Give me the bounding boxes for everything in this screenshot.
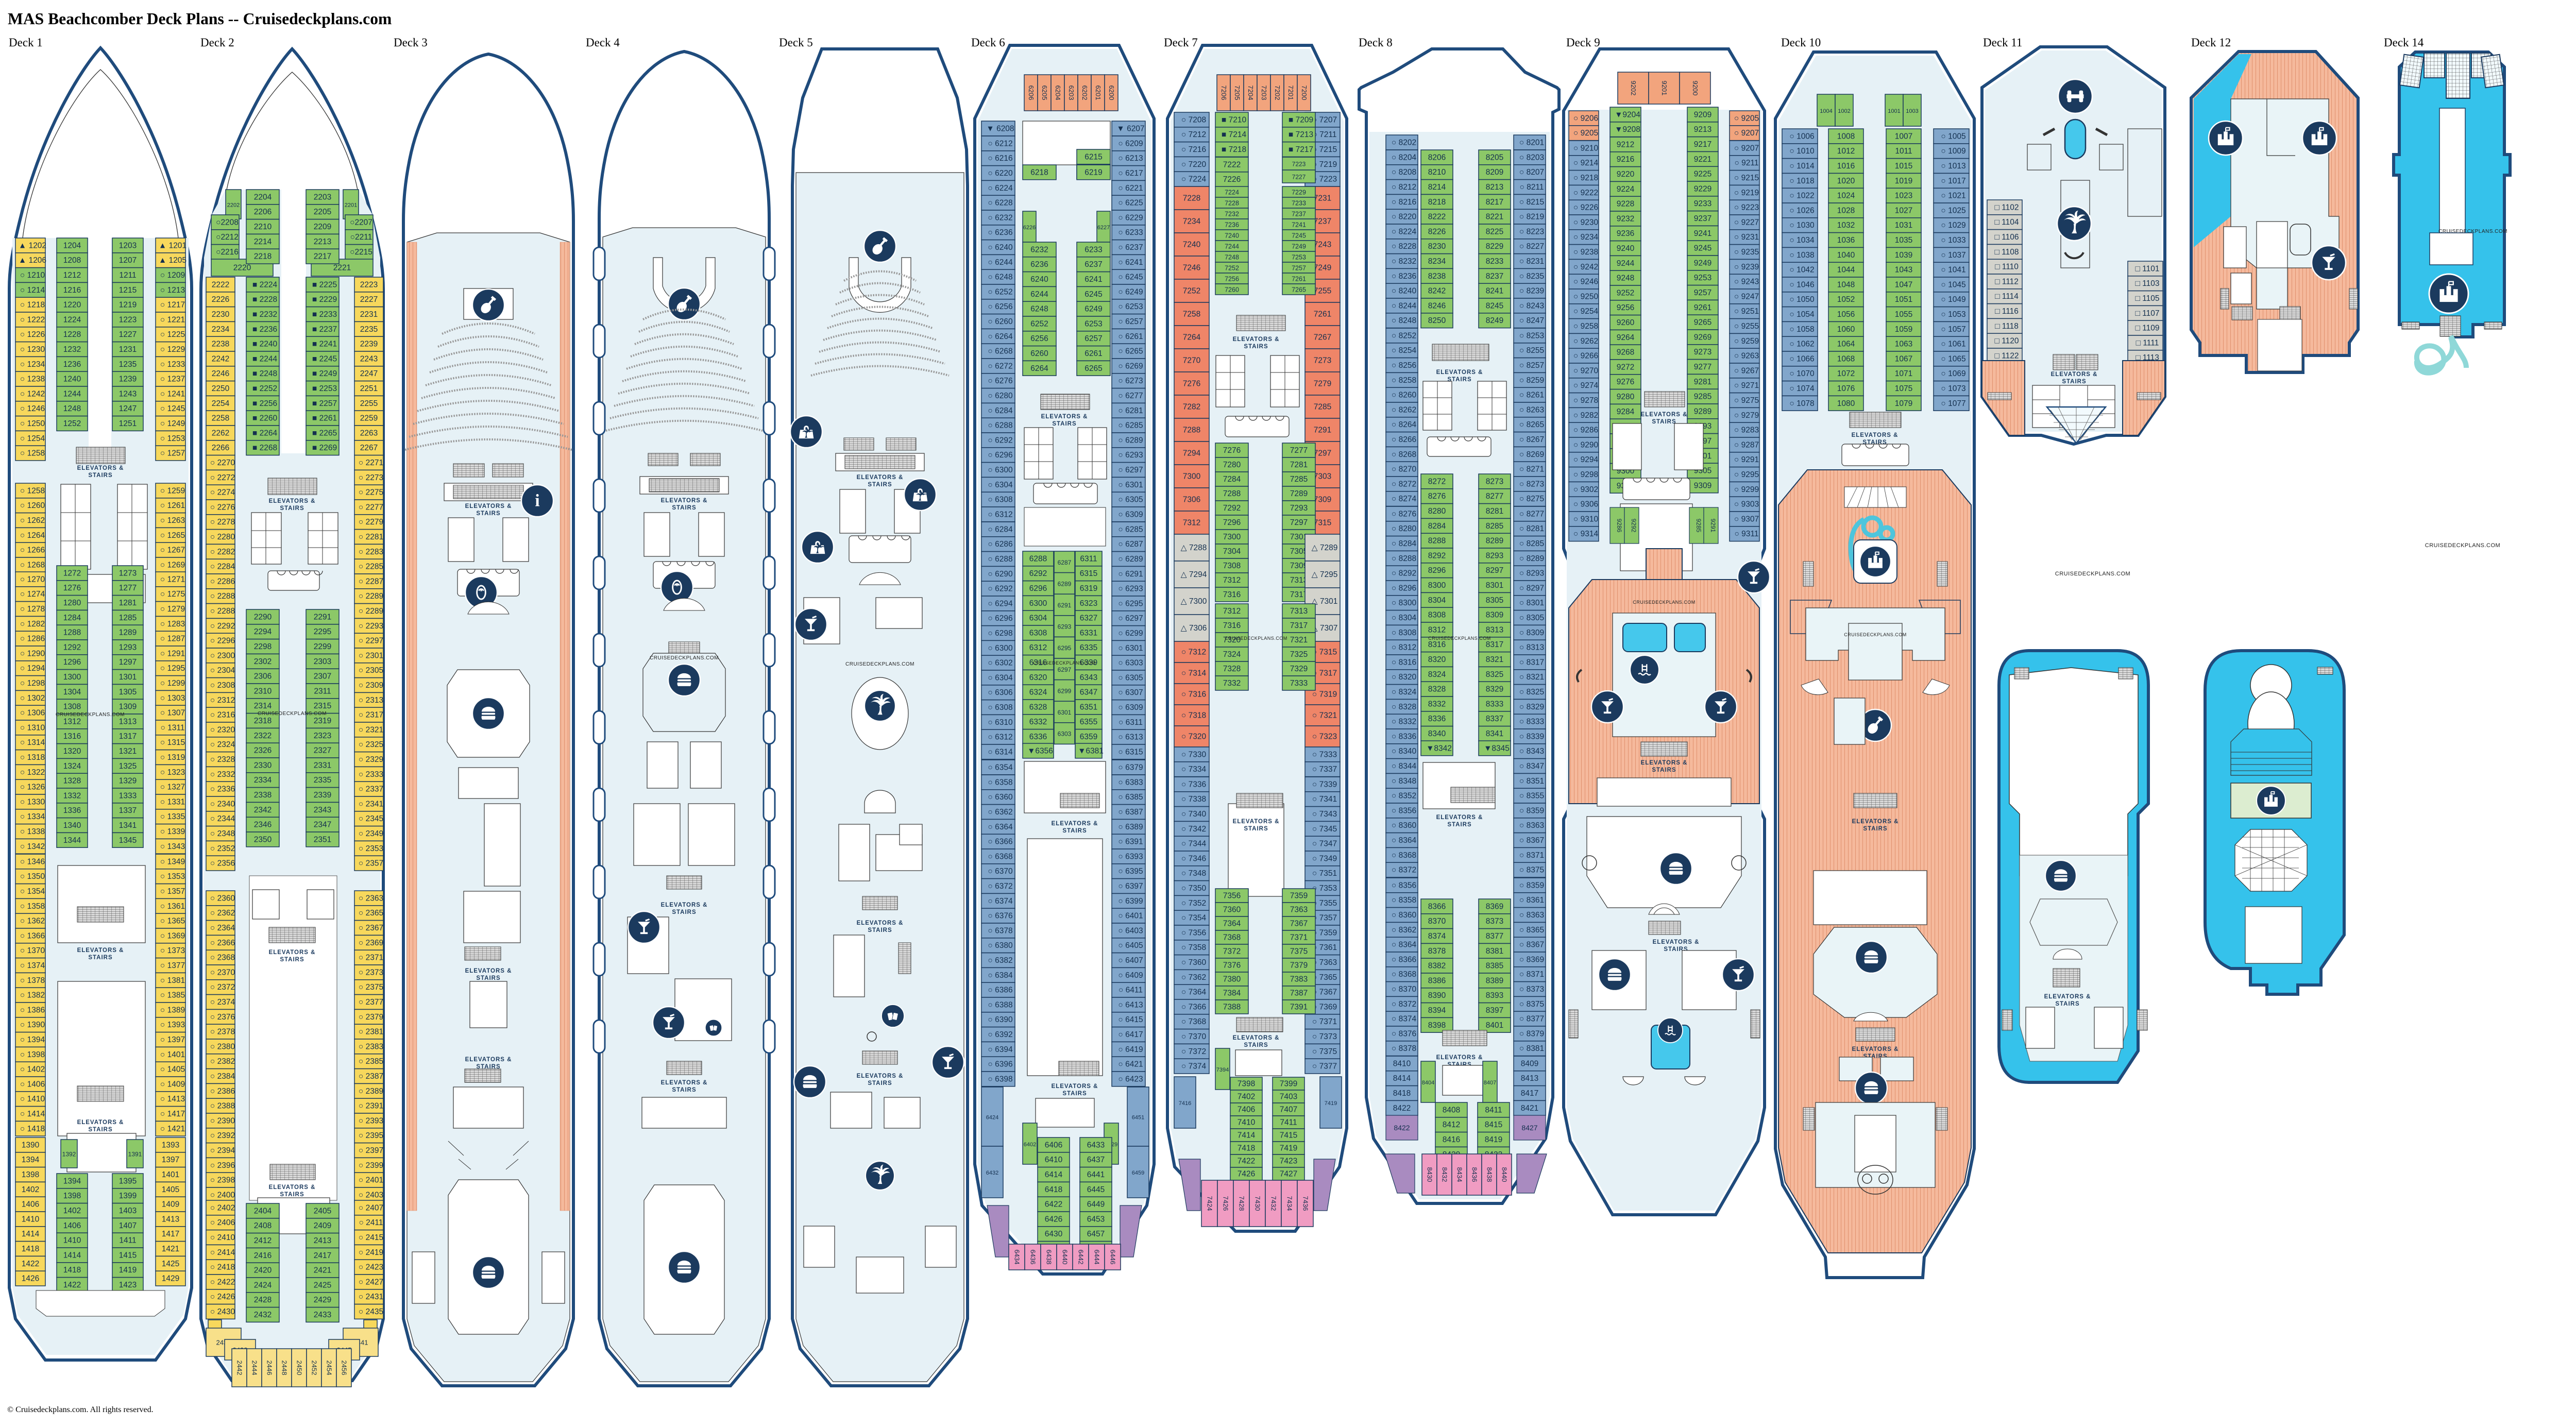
svg-text:○ 7348: ○ 7348	[1181, 869, 1206, 878]
svg-text:8440: 8440	[1501, 1167, 1509, 1182]
svg-text:○ 6413: ○ 6413	[1118, 1000, 1143, 1009]
svg-text:1063: 1063	[1895, 340, 1912, 349]
svg-text:○ 2364: ○ 2364	[210, 924, 235, 932]
svg-text:6265: 6265	[1084, 364, 1102, 373]
svg-text:□ 1120: □ 1120	[1995, 337, 2019, 346]
svg-text:■ 7217: ■ 7217	[1289, 145, 1313, 154]
svg-text:7260: 7260	[1225, 286, 1239, 294]
svg-text:ELEVATORS &: ELEVATORS &	[1233, 336, 1280, 343]
svg-text:○ 6415: ○ 6415	[1118, 1015, 1143, 1024]
svg-text:9225: 9225	[1694, 170, 1711, 179]
svg-text:8418: 8418	[1393, 1089, 1411, 1098]
svg-text:ELEVATORS &: ELEVATORS &	[465, 1057, 512, 1063]
svg-text:○ 8260: ○ 8260	[1392, 391, 1417, 400]
svg-text:○ 2272: ○ 2272	[210, 473, 235, 482]
svg-text:7227: 7227	[1292, 174, 1306, 181]
svg-text:1231: 1231	[119, 345, 137, 354]
svg-text:1252: 1252	[63, 419, 81, 428]
svg-text:○ 6229: ○ 6229	[1118, 213, 1143, 222]
svg-text:Deck 14: Deck 14	[2384, 36, 2424, 49]
svg-text:1035: 1035	[1895, 236, 1912, 245]
svg-text:△ 7294: △ 7294	[1181, 570, 1207, 579]
svg-text:○ 8356: ○ 8356	[1392, 806, 1416, 815]
svg-text:6438: 6438	[1045, 1250, 1053, 1265]
svg-text:▼8342: ▼8342	[1426, 744, 1452, 753]
svg-text:1332: 1332	[63, 791, 81, 800]
svg-text:1020: 1020	[1837, 177, 1855, 185]
svg-text:2408: 2408	[254, 1221, 272, 1230]
svg-text:6202: 6202	[1081, 86, 1089, 100]
svg-text:○ 2270: ○ 2270	[210, 458, 235, 467]
svg-text:6331: 6331	[1080, 628, 1097, 637]
svg-text:○ 9218: ○ 9218	[1573, 174, 1598, 182]
svg-text:7289: 7289	[1290, 489, 1308, 498]
svg-text:6299: 6299	[1058, 687, 1072, 694]
svg-text:7312: 7312	[1223, 607, 1241, 616]
svg-text:7308: 7308	[1223, 562, 1241, 570]
svg-text:1296: 1296	[63, 658, 81, 667]
svg-text:○ 2390: ○ 2390	[210, 1116, 235, 1125]
svg-text:6434: 6434	[1013, 1250, 1021, 1265]
svg-text:○ 8276: ○ 8276	[1392, 509, 1416, 518]
svg-text:8226: 8226	[1428, 227, 1446, 236]
svg-text:Deck 3: Deck 3	[394, 36, 428, 49]
svg-text:ELEVATORS &: ELEVATORS &	[1641, 760, 1688, 766]
svg-text:○ 8207: ○ 8207	[1519, 168, 1544, 177]
svg-text:7288: 7288	[1183, 426, 1200, 435]
svg-text:○ 2378: ○ 2378	[210, 1028, 235, 1037]
svg-text:6332: 6332	[1029, 718, 1047, 726]
svg-text:STAIRS: STAIRS	[868, 482, 892, 488]
svg-text:○ 6297: ○ 6297	[1118, 466, 1143, 474]
svg-text:○ 8293: ○ 8293	[1519, 569, 1544, 578]
svg-text:9244: 9244	[1617, 259, 1635, 268]
svg-text:○ 7339: ○ 7339	[1312, 780, 1337, 789]
svg-text:○ 1330: ○ 1330	[20, 797, 45, 806]
svg-text:○ 9247: ○ 9247	[1734, 292, 1759, 301]
svg-text:7234: 7234	[1183, 217, 1201, 226]
svg-text:8221: 8221	[1486, 213, 1503, 222]
svg-text:2331: 2331	[314, 761, 331, 770]
svg-text:○ 1382: ○ 1382	[20, 991, 45, 1000]
svg-text:7419: 7419	[1325, 1100, 1337, 1107]
svg-text:○ 9235: ○ 9235	[1734, 248, 1759, 257]
svg-text:○ 1385: ○ 1385	[160, 991, 185, 1000]
svg-text:○ 8360: ○ 8360	[1392, 911, 1417, 920]
svg-text:○ 1021: ○ 1021	[1941, 192, 1965, 200]
svg-text:1403: 1403	[119, 1207, 137, 1215]
svg-text:○ 2348: ○ 2348	[210, 829, 235, 838]
svg-text:2412: 2412	[254, 1236, 272, 1245]
svg-text:1410: 1410	[63, 1236, 81, 1245]
svg-text:○ 1070: ○ 1070	[1789, 369, 1815, 378]
svg-text:6232: 6232	[1030, 245, 1048, 254]
svg-text:8214: 8214	[1428, 183, 1446, 192]
svg-text:□ 1111: □ 1111	[2136, 338, 2159, 347]
svg-text:1008: 1008	[1837, 132, 1855, 141]
svg-text:○ 2344: ○ 2344	[210, 814, 235, 823]
svg-text:○ 6296: ○ 6296	[988, 614, 1012, 623]
svg-text:1423: 1423	[119, 1281, 137, 1289]
svg-text:○ 6312: ○ 6312	[988, 510, 1012, 519]
svg-text:■ 2244: ■ 2244	[252, 354, 278, 363]
svg-text:○ 1264: ○ 1264	[20, 531, 45, 540]
svg-text:○ 1229: ○ 1229	[160, 345, 185, 354]
svg-text:STAIRS: STAIRS	[280, 957, 304, 963]
svg-text:○ 2363: ○ 2363	[359, 894, 383, 903]
svg-text:○ 2368: ○ 2368	[210, 954, 235, 962]
svg-text:○ 2406: ○ 2406	[210, 1218, 235, 1227]
svg-text:8292: 8292	[1428, 551, 1446, 560]
svg-text:ELEVATORS &: ELEVATORS &	[465, 968, 512, 974]
svg-text:7285: 7285	[1290, 475, 1308, 484]
svg-text:○ 2393: ○ 2393	[359, 1116, 383, 1125]
svg-text:7363: 7363	[1290, 906, 1308, 914]
svg-text:6449: 6449	[1087, 1200, 1105, 1209]
svg-text:1071: 1071	[1895, 369, 1912, 378]
svg-text:○ 2345: ○ 2345	[359, 814, 383, 823]
svg-text:○ 1353: ○ 1353	[160, 872, 185, 881]
svg-text:1028: 1028	[1837, 206, 1855, 215]
svg-text:8421: 8421	[1521, 1104, 1538, 1113]
svg-text:○ 1250: ○ 1250	[20, 419, 45, 428]
svg-text:2428: 2428	[254, 1296, 272, 1304]
svg-text:6204: 6204	[1054, 86, 1062, 100]
svg-text:○ 6264: ○ 6264	[988, 332, 1013, 341]
svg-text:1223: 1223	[119, 315, 137, 324]
svg-text:6233: 6233	[1084, 245, 1102, 254]
svg-text:○ 9258: ○ 9258	[1573, 322, 1598, 331]
svg-text:1344: 1344	[63, 836, 81, 845]
svg-text:○ 6376: ○ 6376	[988, 912, 1012, 921]
svg-text:6343: 6343	[1080, 673, 1097, 682]
svg-text:9200: 9200	[1691, 81, 1699, 96]
svg-text:○ 2362: ○ 2362	[210, 909, 235, 918]
svg-text:○ 9290: ○ 9290	[1573, 440, 1599, 449]
svg-text:7428: 7428	[1238, 1196, 1246, 1211]
svg-text:○ 1342: ○ 1342	[20, 842, 45, 851]
svg-text:8238: 8238	[1428, 272, 1446, 281]
svg-text:○ 8366: ○ 8366	[1392, 955, 1416, 964]
svg-text:▲ 1201: ▲ 1201	[159, 241, 187, 250]
svg-text:○ 1350: ○ 1350	[20, 872, 45, 881]
svg-text:■ 2268: ■ 2268	[252, 444, 277, 452]
svg-text:□ 1118: □ 1118	[1995, 322, 2019, 331]
svg-text:○ 8347: ○ 8347	[1519, 762, 1544, 771]
svg-text:6301: 6301	[1058, 709, 1072, 716]
svg-text:8245: 8245	[1486, 301, 1503, 310]
svg-text:○ 8379: ○ 8379	[1519, 1029, 1544, 1038]
svg-text:1313: 1313	[119, 717, 137, 726]
svg-text:6200: 6200	[1108, 86, 1115, 100]
svg-text:8237: 8237	[1486, 272, 1503, 281]
svg-text:9212: 9212	[1617, 140, 1634, 149]
svg-text:○ 8219: ○ 8219	[1519, 213, 1544, 222]
svg-text:○ 2308: ○ 2308	[210, 681, 235, 690]
svg-text:○ 8329: ○ 8329	[1519, 703, 1544, 711]
svg-text:7292: 7292	[1223, 504, 1241, 513]
svg-text:8386: 8386	[1428, 976, 1446, 985]
svg-text:○ 1269: ○ 1269	[160, 560, 185, 569]
svg-text:1415: 1415	[119, 1251, 137, 1260]
svg-text:6296: 6296	[1029, 584, 1047, 593]
svg-text:8285: 8285	[1486, 522, 1503, 531]
svg-text:○ 9246: ○ 9246	[1573, 278, 1598, 286]
svg-text:■ 2233: ■ 2233	[312, 310, 337, 319]
svg-text:○ 8372: ○ 8372	[1392, 1000, 1416, 1009]
svg-text:1203: 1203	[119, 241, 137, 250]
svg-text:○ 9283: ○ 9283	[1734, 426, 1759, 435]
svg-text:□ 1103: □ 1103	[2136, 279, 2160, 288]
svg-text:○ 6307: ○ 6307	[1118, 688, 1143, 697]
svg-text:7280: 7280	[1223, 461, 1241, 469]
svg-text:○ 2380: ○ 2380	[210, 1042, 235, 1051]
svg-text:6248: 6248	[1030, 305, 1048, 314]
svg-text:○ 1274: ○ 1274	[20, 590, 45, 599]
svg-text:6288: 6288	[1029, 554, 1047, 563]
svg-text:2258: 2258	[212, 414, 229, 423]
svg-text:2218: 2218	[254, 252, 272, 261]
svg-text:2299: 2299	[314, 642, 331, 651]
svg-text:○ 6241: ○ 6241	[1118, 258, 1143, 267]
svg-text:7415: 7415	[1280, 1131, 1297, 1140]
svg-text:7411: 7411	[1280, 1118, 1297, 1127]
svg-text:○ 1238: ○ 1238	[20, 375, 45, 384]
svg-text:ELEVATORS &: ELEVATORS &	[1052, 1083, 1098, 1090]
svg-text:7228: 7228	[1183, 194, 1200, 203]
svg-text:2350: 2350	[254, 835, 272, 844]
svg-text:○ 9210: ○ 9210	[1573, 144, 1599, 152]
svg-text:○ 7223: ○ 7223	[1312, 175, 1337, 184]
svg-text:○ 6372: ○ 6372	[988, 882, 1012, 891]
svg-text:○ 6216: ○ 6216	[988, 154, 1012, 163]
svg-text:8427: 8427	[1521, 1124, 1537, 1132]
svg-text:○ 2321: ○ 2321	[359, 725, 383, 734]
svg-text:8389: 8389	[1486, 976, 1503, 985]
svg-text:○ 6364: ○ 6364	[988, 823, 1013, 831]
svg-text:○ 6209: ○ 6209	[1118, 139, 1143, 148]
svg-text:7332: 7332	[1223, 679, 1241, 688]
svg-text:7206: 7206	[1220, 86, 1228, 100]
svg-text:8407: 8407	[1484, 1080, 1496, 1086]
svg-text:○ 8305: ○ 8305	[1519, 614, 1544, 622]
svg-text:2250: 2250	[212, 384, 230, 393]
svg-text:8393: 8393	[1486, 991, 1503, 1000]
svg-text:▲ 1206: ▲ 1206	[19, 256, 46, 265]
svg-text:1007: 1007	[1895, 132, 1912, 141]
svg-text:○ 6244: ○ 6244	[988, 258, 1013, 267]
svg-text:○ 7317: ○ 7317	[1312, 669, 1337, 678]
svg-text:○ 2277: ○ 2277	[359, 503, 383, 512]
svg-text:○ 9291: ○ 9291	[1734, 455, 1759, 464]
svg-text:7261: 7261	[1292, 276, 1306, 283]
svg-text:6433: 6433	[1087, 1141, 1105, 1149]
svg-text:○ 7220: ○ 7220	[1181, 160, 1207, 169]
svg-text:○ 8281: ○ 8281	[1519, 524, 1544, 533]
svg-text:1076: 1076	[1837, 384, 1855, 393]
svg-text:○ 2283: ○ 2283	[359, 548, 383, 556]
svg-text:ELEVATORS &: ELEVATORS &	[1641, 412, 1688, 418]
svg-text:1405: 1405	[162, 1185, 179, 1194]
svg-text:○ 2379: ○ 2379	[359, 1013, 383, 1022]
svg-text:○ 6309: ○ 6309	[1118, 510, 1143, 519]
svg-text:○ 2349: ○ 2349	[359, 829, 383, 838]
svg-text:1075: 1075	[1895, 384, 1912, 393]
svg-text:○ 8367: ○ 8367	[1519, 941, 1544, 949]
svg-text:2263: 2263	[360, 429, 378, 437]
svg-text:2322: 2322	[254, 732, 272, 740]
svg-text:○ 8263: ○ 8263	[1519, 405, 1544, 414]
svg-text:9285: 9285	[1695, 519, 1702, 533]
svg-text:Deck 2: Deck 2	[200, 36, 234, 49]
svg-text:2319: 2319	[314, 717, 331, 725]
svg-text:○ 6290: ○ 6290	[988, 570, 1013, 579]
svg-text:○ 1006: ○ 1006	[1789, 132, 1814, 141]
svg-text:6249: 6249	[1084, 305, 1102, 314]
svg-text:○ 6272: ○ 6272	[988, 362, 1012, 370]
svg-text:○ 2385: ○ 2385	[359, 1057, 383, 1066]
svg-text:○ 8376: ○ 8376	[1392, 1029, 1416, 1038]
svg-text:○ 2396: ○ 2396	[210, 1161, 235, 1170]
svg-text:ELEVATORS &: ELEVATORS &	[77, 1119, 124, 1126]
svg-text:○ 6407: ○ 6407	[1118, 956, 1143, 965]
svg-text:■ 2232: ■ 2232	[252, 310, 277, 319]
svg-text:STAIRS: STAIRS	[672, 909, 696, 915]
svg-text:○ 8348: ○ 8348	[1392, 777, 1416, 786]
svg-text:1051: 1051	[1895, 295, 1912, 304]
svg-text:8394: 8394	[1428, 1006, 1446, 1015]
svg-text:1215: 1215	[119, 286, 137, 295]
svg-text:○ 1009: ○ 1009	[1941, 147, 1965, 156]
svg-text:○ 8292: ○ 8292	[1392, 569, 1416, 578]
svg-text:1341: 1341	[119, 821, 137, 830]
svg-text:○ 7208: ○ 7208	[1181, 115, 1206, 124]
svg-text:○ 7377: ○ 7377	[1312, 1062, 1337, 1071]
svg-text:1390: 1390	[22, 1141, 40, 1149]
svg-text:○ 2398: ○ 2398	[210, 1176, 235, 1185]
svg-text:6227: 6227	[1097, 225, 1110, 231]
svg-text:○ 8252: ○ 8252	[1392, 331, 1416, 340]
svg-text:○ 6313: ○ 6313	[1118, 733, 1143, 742]
svg-text:1011: 1011	[1895, 147, 1912, 156]
svg-text:1211: 1211	[119, 271, 136, 280]
svg-text:6437: 6437	[1087, 1156, 1105, 1164]
svg-text:○ 6249: ○ 6249	[1118, 287, 1143, 296]
svg-text:▼9208: ▼9208	[1615, 125, 1640, 134]
svg-text:1219: 1219	[119, 301, 137, 310]
svg-text:7383: 7383	[1290, 975, 1308, 984]
svg-text:■ 2240: ■ 2240	[252, 340, 278, 349]
svg-text:○ 8255: ○ 8255	[1519, 346, 1544, 355]
svg-text:1016: 1016	[1837, 162, 1855, 171]
svg-text:○ 1299: ○ 1299	[160, 679, 185, 688]
svg-text:1304: 1304	[63, 688, 81, 696]
svg-text:8218: 8218	[1428, 198, 1446, 207]
svg-text:○ 1034: ○ 1034	[1789, 236, 1815, 245]
svg-text:2448: 2448	[281, 1361, 289, 1375]
svg-text:6260: 6260	[1030, 349, 1048, 358]
svg-text:2335: 2335	[314, 776, 331, 785]
svg-text:9233: 9233	[1694, 199, 1711, 208]
svg-text:○ 6285: ○ 6285	[1118, 525, 1143, 534]
svg-text:○ 2376: ○ 2376	[210, 1013, 235, 1022]
svg-text:9241: 9241	[1694, 229, 1711, 238]
svg-text:○ 1230: ○ 1230	[20, 345, 45, 354]
svg-text:7284: 7284	[1223, 475, 1241, 484]
svg-text:STAIRS: STAIRS	[476, 975, 500, 981]
svg-text:6359: 6359	[1080, 733, 1097, 741]
svg-text:△ 7300: △ 7300	[1181, 597, 1207, 606]
svg-text:○ 1268: ○ 1268	[20, 560, 45, 569]
svg-text:7241: 7241	[1292, 222, 1306, 229]
svg-text:2214: 2214	[254, 237, 272, 246]
svg-text:ELEVATORS &: ELEVATORS &	[1041, 414, 1088, 420]
svg-text:1391: 1391	[128, 1151, 142, 1158]
svg-text:1324: 1324	[63, 762, 81, 771]
svg-text:○ 8371: ○ 8371	[1519, 970, 1544, 979]
svg-text:8234: 8234	[1428, 257, 1446, 266]
svg-text:1235: 1235	[119, 360, 137, 369]
svg-text:2221: 2221	[333, 264, 351, 273]
svg-text:○ 9259: ○ 9259	[1734, 337, 1759, 346]
svg-text:○ 1234: ○ 1234	[20, 360, 45, 369]
svg-text:9285: 9285	[1694, 393, 1711, 401]
svg-text:○ 6301: ○ 6301	[1118, 644, 1143, 653]
svg-text:7418: 7418	[1238, 1144, 1255, 1153]
svg-text:○ 6387: ○ 6387	[1118, 808, 1143, 817]
svg-text:1300: 1300	[63, 673, 81, 682]
svg-text:2239: 2239	[360, 340, 378, 349]
svg-text:6441: 6441	[1087, 1170, 1105, 1179]
svg-text:○ 1041: ○ 1041	[1941, 266, 1965, 275]
svg-text:○ 8204: ○ 8204	[1392, 153, 1417, 162]
svg-text:○ 1260: ○ 1260	[20, 501, 45, 510]
svg-text:1247: 1247	[119, 404, 137, 413]
svg-text:2235: 2235	[360, 325, 378, 334]
svg-text:2290: 2290	[254, 613, 272, 621]
svg-text:ELEVATORS &: ELEVATORS &	[661, 1080, 708, 1086]
svg-text:○ 8261: ○ 8261	[1519, 391, 1544, 400]
svg-text:○ 6366: ○ 6366	[988, 838, 1012, 846]
svg-text:○ 2300: ○ 2300	[210, 651, 235, 660]
svg-text:6457: 6457	[1087, 1230, 1105, 1238]
svg-text:8210: 8210	[1428, 168, 1446, 177]
svg-text:○ 6303: ○ 6303	[1118, 659, 1143, 668]
svg-text:7380: 7380	[1223, 975, 1241, 984]
svg-text:7273: 7273	[1314, 356, 1331, 365]
svg-text:○ 9298: ○ 9298	[1573, 470, 1598, 479]
svg-text:2310: 2310	[254, 687, 272, 695]
svg-text:8316: 8316	[1428, 640, 1446, 649]
svg-text:○ 7215: ○ 7215	[1312, 145, 1337, 154]
svg-text:1040: 1040	[1837, 251, 1855, 260]
svg-text:○ 2286: ○ 2286	[210, 577, 235, 586]
svg-text:○ 9306: ○ 9306	[1573, 500, 1598, 509]
svg-text:9236: 9236	[1617, 229, 1634, 238]
svg-text:○ 8333: ○ 8333	[1519, 718, 1544, 726]
svg-text:9260: 9260	[1617, 318, 1635, 327]
svg-text:○ 9294: ○ 9294	[1573, 455, 1599, 464]
svg-text:STAIRS: STAIRS	[88, 955, 112, 961]
svg-text:2338: 2338	[254, 791, 272, 800]
svg-text:ELEVATORS &: ELEVATORS &	[661, 498, 708, 504]
svg-text:○ 2389: ○ 2389	[359, 1087, 383, 1096]
svg-text:○ 1369: ○ 1369	[160, 931, 185, 940]
svg-text:○ 6386: ○ 6386	[988, 986, 1012, 995]
svg-text:7317: 7317	[1290, 621, 1308, 630]
svg-text:2202: 2202	[227, 202, 240, 209]
svg-text:7312: 7312	[1183, 519, 1200, 528]
